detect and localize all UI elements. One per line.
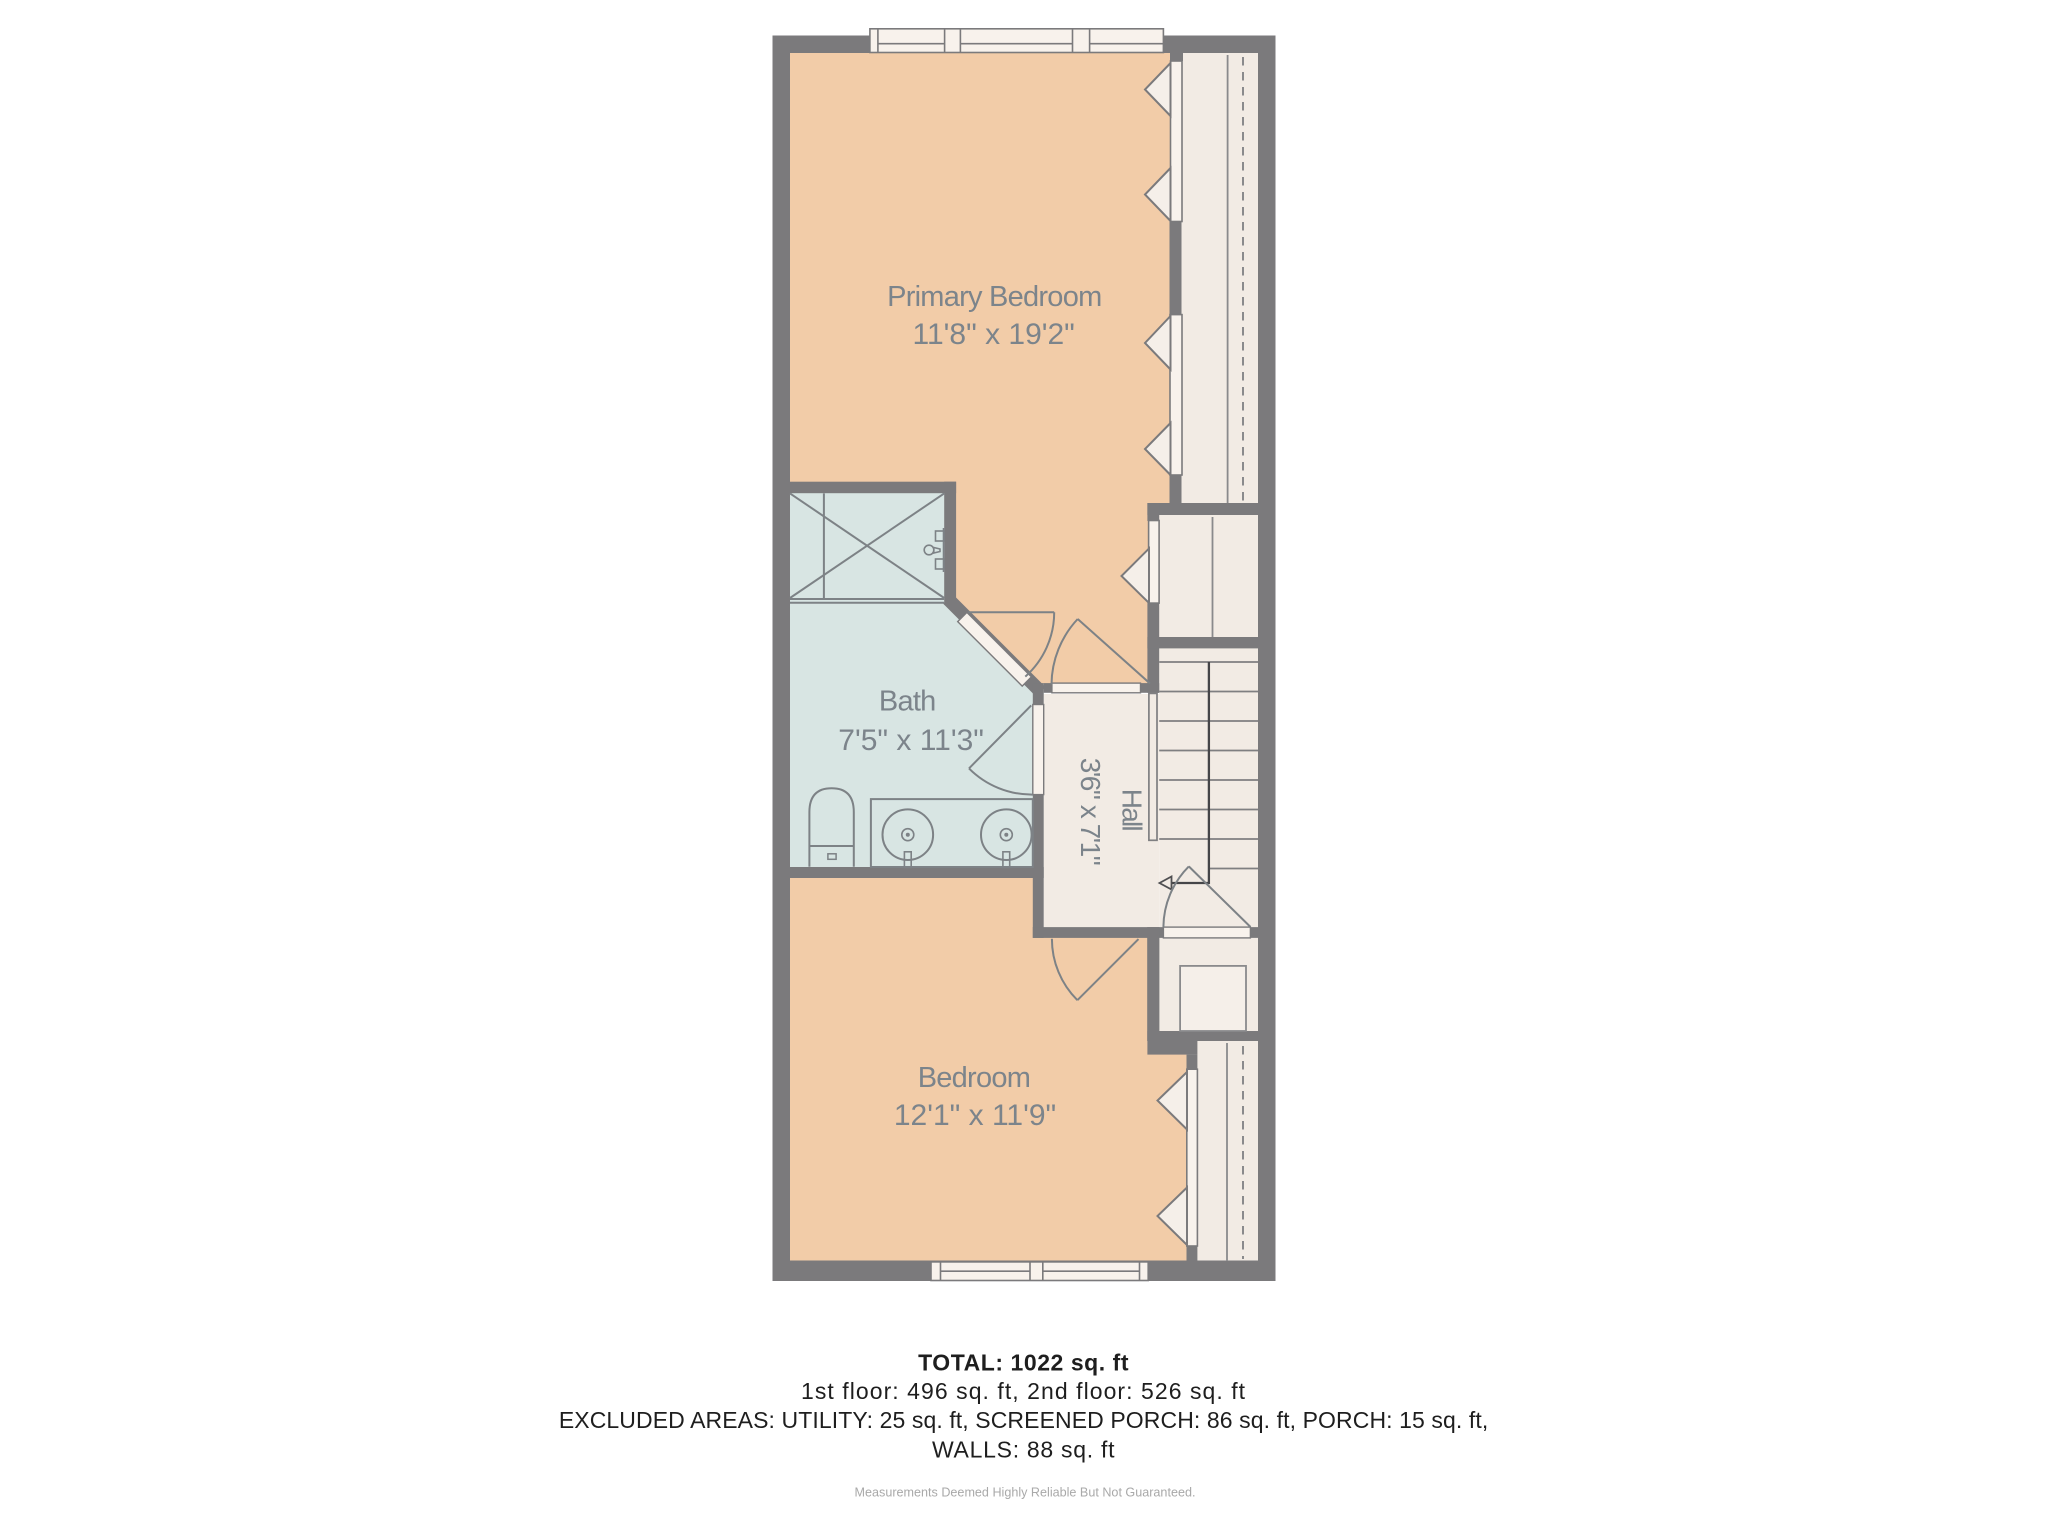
svg-text:12'1" x 11'9": 12'1" x 11'9" bbox=[894, 1099, 1056, 1132]
svg-text:7'5" x 11'3": 7'5" x 11'3" bbox=[838, 724, 984, 757]
svg-text:Bedroom: Bedroom bbox=[918, 1062, 1030, 1094]
svg-text:WALLS: 88 sq. ft: WALLS: 88 sq. ft bbox=[932, 1437, 1115, 1463]
svg-text:11'8" x 19'2": 11'8" x 19'2" bbox=[913, 318, 1075, 351]
svg-text:EXCLUDED AREAS: UTILITY: 25 sq: EXCLUDED AREAS: UTILITY: 25 sq. ft, SCRE… bbox=[559, 1407, 1489, 1433]
svg-text:Measurements Deemed Highly Rel: Measurements Deemed Highly Reliable But … bbox=[855, 1486, 1196, 1500]
svg-text:Hall: Hall bbox=[1117, 789, 1148, 831]
svg-text:3'6" x 7'1": 3'6" x 7'1" bbox=[1075, 758, 1106, 865]
svg-text:TOTAL: 1022 sq. ft: TOTAL: 1022 sq. ft bbox=[918, 1349, 1129, 1375]
svg-text:1st floor: 496 sq. ft, 2nd flo: 1st floor: 496 sq. ft, 2nd floor: 526 sq… bbox=[801, 1378, 1246, 1404]
svg-text:Primary Bedroom: Primary Bedroom bbox=[887, 281, 1101, 313]
svg-text:Bath: Bath bbox=[879, 686, 936, 718]
